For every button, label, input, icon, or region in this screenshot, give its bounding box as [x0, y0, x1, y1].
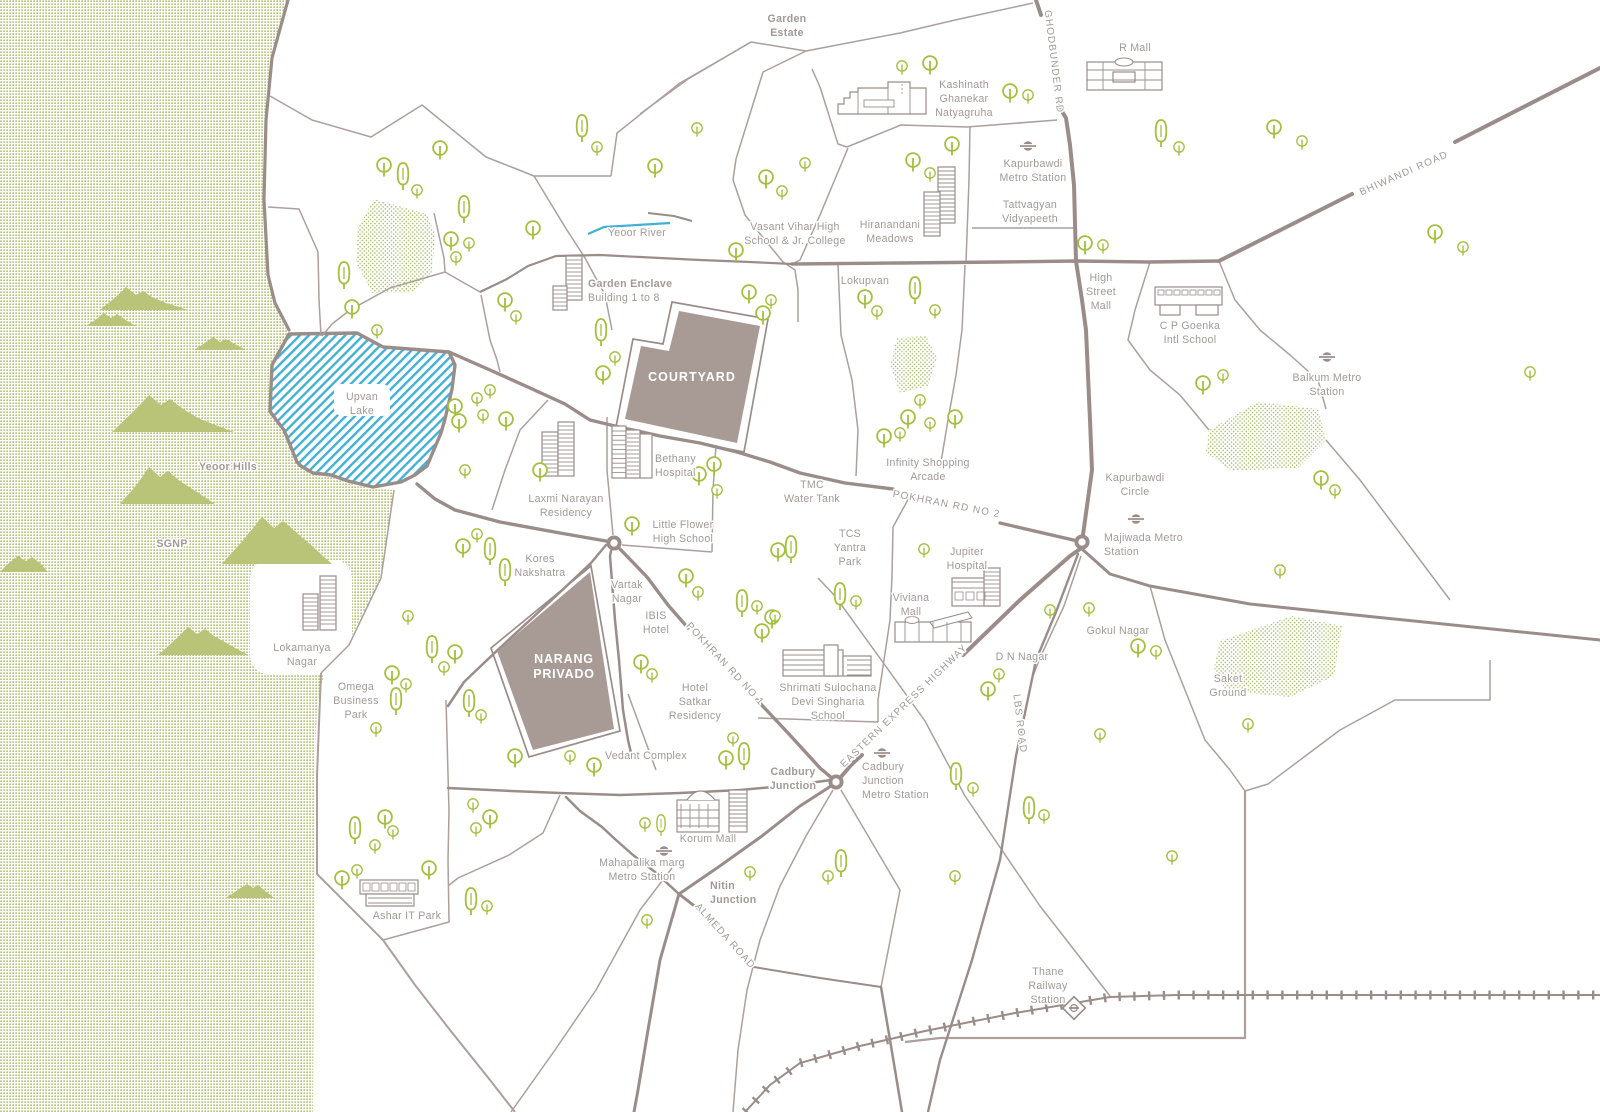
svg-text:Lokupvan: Lokupvan [841, 275, 889, 287]
svg-text:COURTYARD: COURTYARD [648, 370, 736, 384]
svg-text:KashinathGhanekarNatyagruha: KashinathGhanekarNatyagruha [935, 79, 993, 119]
svg-text:Vedant Complex: Vedant Complex [605, 750, 687, 762]
svg-text:Ashar IT Park: Ashar IT Park [373, 910, 442, 922]
svg-text:ThaneRailwayStation: ThaneRailwayStation [1028, 966, 1068, 1006]
svg-text:PRIVADO: PRIVADO [533, 667, 595, 681]
svg-text:R Mall: R Mall [1119, 42, 1151, 54]
svg-text:Building 1 to 8: Building 1 to 8 [588, 292, 660, 304]
svg-text:Gokul Nagar: Gokul Nagar [1087, 625, 1150, 637]
svg-text:Yeoor Hills: Yeoor Hills [199, 461, 257, 473]
svg-text:Yeoor River: Yeoor River [608, 227, 666, 239]
svg-text:NARANG: NARANG [534, 652, 594, 666]
svg-text:D N Nagar: D N Nagar [996, 651, 1049, 663]
svg-text:SGNP: SGNP [156, 538, 187, 550]
svg-text:Korum Mall: Korum Mall [680, 833, 737, 845]
svg-text:Garden Enclave: Garden Enclave [588, 278, 672, 290]
